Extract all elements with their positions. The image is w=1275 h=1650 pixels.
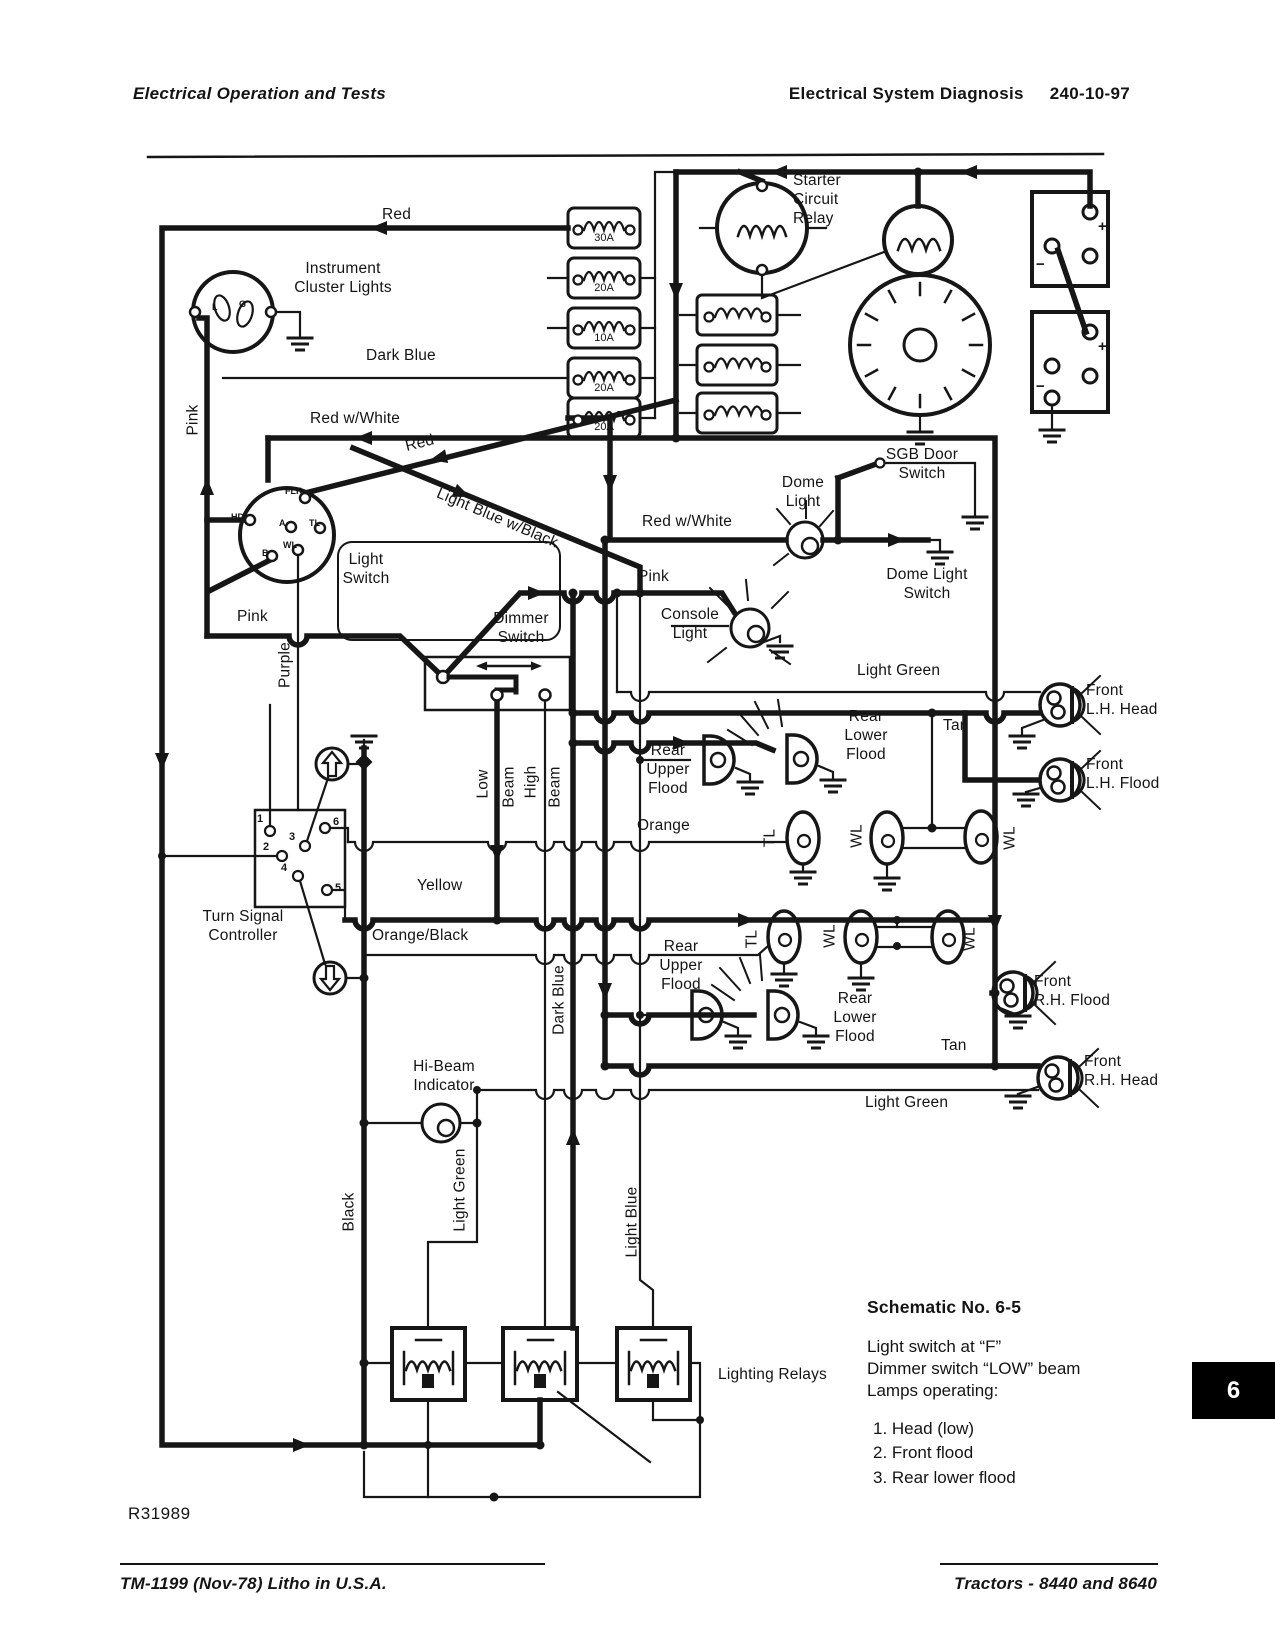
wire-label-tan-2: Tan bbox=[941, 1037, 967, 1056]
tsc-terminal-6: 6 bbox=[333, 816, 339, 828]
tsc-terminal-4: 4 bbox=[281, 862, 287, 874]
list-item: 2. Front flood bbox=[873, 1442, 1197, 1464]
footer-publication-info: TM-1199 (Nov-78) Litho in U.S.A. bbox=[120, 1574, 387, 1594]
footer-model-info: Tractors - 8440 and 8640 bbox=[954, 1574, 1157, 1594]
turn-signal-up-indicator bbox=[316, 748, 348, 780]
lamp-label-wl-4: WL bbox=[962, 927, 981, 951]
wire-label-pink-vertical: Pink bbox=[185, 405, 204, 436]
tail-work-lamps-row1 bbox=[787, 811, 997, 864]
schematic-number-title: Schematic No. 6-5 bbox=[867, 1296, 1197, 1318]
hi-beam-indicator-symbol bbox=[422, 1104, 460, 1142]
component-label-lighting-relays: Lighting Relays bbox=[718, 1366, 827, 1385]
wire-label-red-w-white: Red w/White bbox=[310, 410, 400, 429]
wire-label-light-green-1: Light Green bbox=[857, 662, 940, 681]
fuse-rating-label: 20A bbox=[594, 382, 614, 394]
switch-terminal-tl: TL bbox=[309, 518, 320, 528]
wire-label-light-blue-vertical: Light Blue bbox=[624, 1187, 643, 1258]
component-label-starter-circuit-relay: Starter Circuit Relay bbox=[793, 172, 841, 229]
switch-terminal-b: B bbox=[262, 548, 269, 558]
wire-label-dark-blue: Dark Blue bbox=[366, 347, 436, 366]
wire-label-high-beam: Beam bbox=[547, 766, 566, 807]
lamp-label-rear-upper-flood-2: Rear Upper Flood bbox=[659, 938, 702, 995]
tsc-terminal-2: 2 bbox=[263, 841, 269, 853]
component-label-hi-beam-indicator: Hi-Beam Indicator bbox=[413, 1058, 475, 1096]
component-label-console-light: Console Light bbox=[661, 606, 719, 644]
component-label-dome-light-switch: Dome Light Switch bbox=[886, 566, 967, 604]
lamp-label-front-lh-flood: Front L.H. Flood bbox=[1086, 756, 1160, 794]
component-label-sgb-door-switch: SGB Door Switch bbox=[886, 446, 958, 484]
switch-terminal-a: A bbox=[279, 518, 286, 528]
tsc-terminal-3: 3 bbox=[289, 831, 295, 843]
battery-2-symbol bbox=[1032, 312, 1108, 412]
chapter-tab: 6 bbox=[1192, 1362, 1275, 1419]
wire-label-tan-1: Tan bbox=[943, 717, 969, 736]
lamp-label-wl-3: WL bbox=[822, 924, 841, 948]
wire-label-black: Black bbox=[341, 1193, 360, 1232]
battery2-plus: + bbox=[1098, 338, 1107, 355]
battery1-minus: − bbox=[1036, 256, 1045, 273]
instrument-cluster-lights-symbol bbox=[190, 272, 276, 352]
lamps-operating-list: 1. Head (low) 2. Front flood 3. Rear low… bbox=[867, 1418, 1197, 1489]
footer-rule-left bbox=[120, 1563, 545, 1565]
switch-terminal-hd: HD bbox=[231, 512, 244, 522]
list-item: 3. Rear lower flood bbox=[873, 1467, 1197, 1489]
wire-label-red: Red bbox=[382, 206, 411, 225]
lamp-label-rear-lower-flood-2: Rear Lower Flood bbox=[833, 990, 876, 1047]
wire-label-orange: Orange bbox=[637, 817, 690, 836]
wire-label-low: Low bbox=[475, 769, 494, 798]
footer-rule-right bbox=[940, 1563, 1158, 1565]
component-label-turn-signal-controller: Turn Signal Controller bbox=[203, 908, 284, 946]
relay-block-column bbox=[697, 295, 777, 433]
manual-page: Electrical Operation and Tests Electrica… bbox=[0, 0, 1275, 1650]
starter-motor-symbol bbox=[850, 206, 990, 415]
cluster-terminal-g: G bbox=[239, 299, 246, 309]
switch-terminal-wl: WL bbox=[283, 540, 297, 550]
fuse-rating-label: 10A bbox=[594, 332, 614, 344]
tsc-terminal-1: 1 bbox=[257, 813, 263, 825]
turn-signal-controller-symbol bbox=[255, 810, 345, 907]
wire-label-light-green-vertical: Light Green bbox=[452, 1148, 471, 1231]
wire-label-orange-black: Orange/Black bbox=[372, 927, 468, 946]
component-label-dimmer-switch: Dimmer Switch bbox=[493, 610, 548, 648]
fuse-rating-label: 20A bbox=[594, 421, 614, 433]
lamp-label-wl-1: WL bbox=[849, 824, 868, 848]
switch-terminal-flr: FLR bbox=[285, 486, 303, 496]
fuse-rating-label: 20A bbox=[594, 282, 614, 294]
lamp-label-front-rh-flood: Front R.H. Flood bbox=[1034, 973, 1110, 1011]
wire-label-low-beam: Beam bbox=[501, 766, 520, 807]
turn-signal-down-indicator bbox=[314, 962, 346, 994]
component-label-light-switch: Light Switch bbox=[343, 551, 390, 589]
wire-label-pink-console: Pink bbox=[638, 568, 669, 587]
fuse-rating-label: 30A bbox=[594, 232, 614, 244]
wire-label-pink: Pink bbox=[237, 608, 268, 627]
junction-diamond bbox=[356, 754, 373, 771]
lamp-label-rear-upper-flood-1: Rear Upper Flood bbox=[646, 742, 689, 799]
list-item: 1. Head (low) bbox=[873, 1418, 1197, 1440]
lamp-label-wl-2: WL bbox=[1002, 826, 1021, 850]
tsc-terminal-5: 5 bbox=[335, 882, 341, 894]
sgb-door-switch-symbol bbox=[876, 459, 885, 468]
wire-label-dark-blue-vertical: Dark Blue bbox=[551, 965, 570, 1035]
wire-label-purple: Purple bbox=[277, 642, 296, 688]
battery1-plus: + bbox=[1098, 218, 1107, 235]
lighting-relay-2 bbox=[503, 1328, 577, 1400]
lamp-label-front-rh-head: Front R.H. Head bbox=[1084, 1053, 1158, 1091]
wire-label-light-green-2: Light Green bbox=[865, 1094, 948, 1113]
lamp-label-tl-2: TL bbox=[744, 930, 763, 949]
battery2-minus: − bbox=[1036, 378, 1045, 395]
cluster-terminal-l: L bbox=[212, 302, 218, 312]
lighting-relay-3 bbox=[617, 1328, 690, 1400]
wire-label-yellow: Yellow bbox=[417, 877, 462, 896]
lamp-label-front-lh-head: Front L.H. Head bbox=[1086, 682, 1158, 720]
schematic-notes: Schematic No. 6-5 Light switch at “F” Di… bbox=[867, 1296, 1197, 1492]
schematic-conditions: Light switch at “F” Dimmer switch “LOW” … bbox=[867, 1336, 1197, 1401]
lamp-label-rear-lower-flood-1: Rear Lower Flood bbox=[844, 708, 887, 765]
wire-label-red-w-white-dome: Red w/White bbox=[642, 513, 732, 532]
lamp-label-tl-1: TL bbox=[762, 829, 781, 848]
wire-label-high: High bbox=[523, 766, 542, 799]
lighting-relay-1 bbox=[392, 1328, 465, 1400]
component-label-instrument-cluster-lights: Instrument Cluster Lights bbox=[294, 260, 392, 298]
component-label-dome-light: Dome Light bbox=[782, 474, 824, 512]
figure-reference-number: R31989 bbox=[128, 1504, 191, 1524]
